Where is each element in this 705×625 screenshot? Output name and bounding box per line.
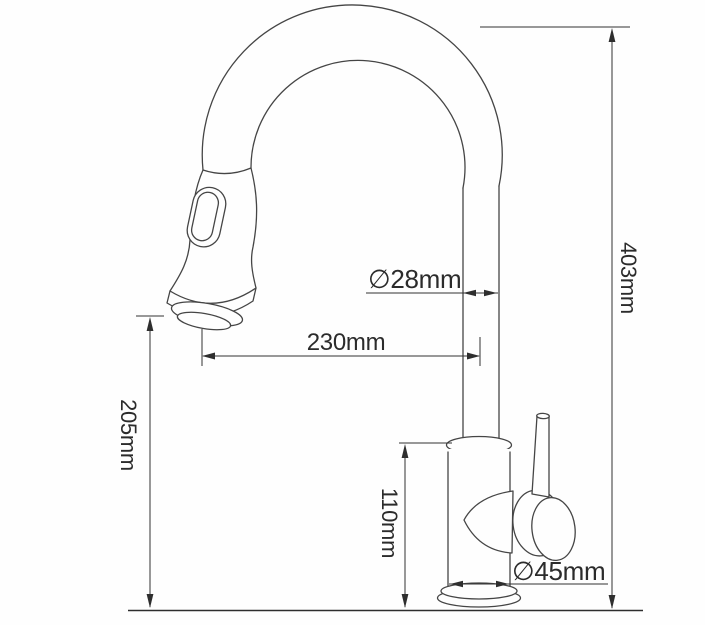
dimension-label-body-diameter: ∅45mm	[512, 556, 605, 586]
dimension-label-body-height: 110mm	[377, 488, 402, 558]
arrow-right-icon	[467, 353, 480, 360]
dimension-label-outlet-clearance: 205mm	[116, 399, 141, 471]
faucet-dimension-diagram: 403mm 205mm 110mm 230mm ∅28mm ∅45mm	[0, 0, 705, 625]
arrow-down-icon	[147, 594, 154, 608]
arrow-right-icon	[484, 290, 497, 296]
arrow-up-icon	[147, 317, 154, 331]
dimension-spout-reach: 230mm	[202, 329, 480, 366]
spout-inner-arc	[251, 60, 465, 188]
dimension-label-overall-height: 403mm	[616, 242, 641, 314]
arrow-down-icon	[402, 594, 409, 608]
dimension-spout-diameter: ∅28mm	[366, 264, 498, 296]
dimension-label-spout-reach: 230mm	[307, 329, 386, 356]
handle-lever-rod-cap	[537, 413, 550, 419]
handle-lever-rod	[532, 416, 549, 497]
arrow-left-icon	[202, 353, 215, 360]
dimension-body-height: 110mm	[377, 443, 452, 608]
base-flange-upper-ring	[441, 583, 517, 599]
base-flange	[438, 583, 521, 607]
arrow-left-icon	[463, 290, 476, 296]
diagram-canvas: 403mm 205mm 110mm 230mm ∅28mm ∅45mm	[0, 0, 705, 625]
spray-head	[167, 168, 257, 333]
faucet-drawing	[167, 5, 579, 607]
arrow-up-icon	[609, 28, 616, 42]
dimension-label-spout-diameter: ∅28mm	[368, 264, 461, 294]
dimension-outlet-clearance: 205mm	[116, 316, 164, 608]
spout-outer-arc	[202, 5, 502, 186]
arrow-up-icon	[402, 444, 409, 458]
arrow-down-icon	[609, 595, 616, 609]
